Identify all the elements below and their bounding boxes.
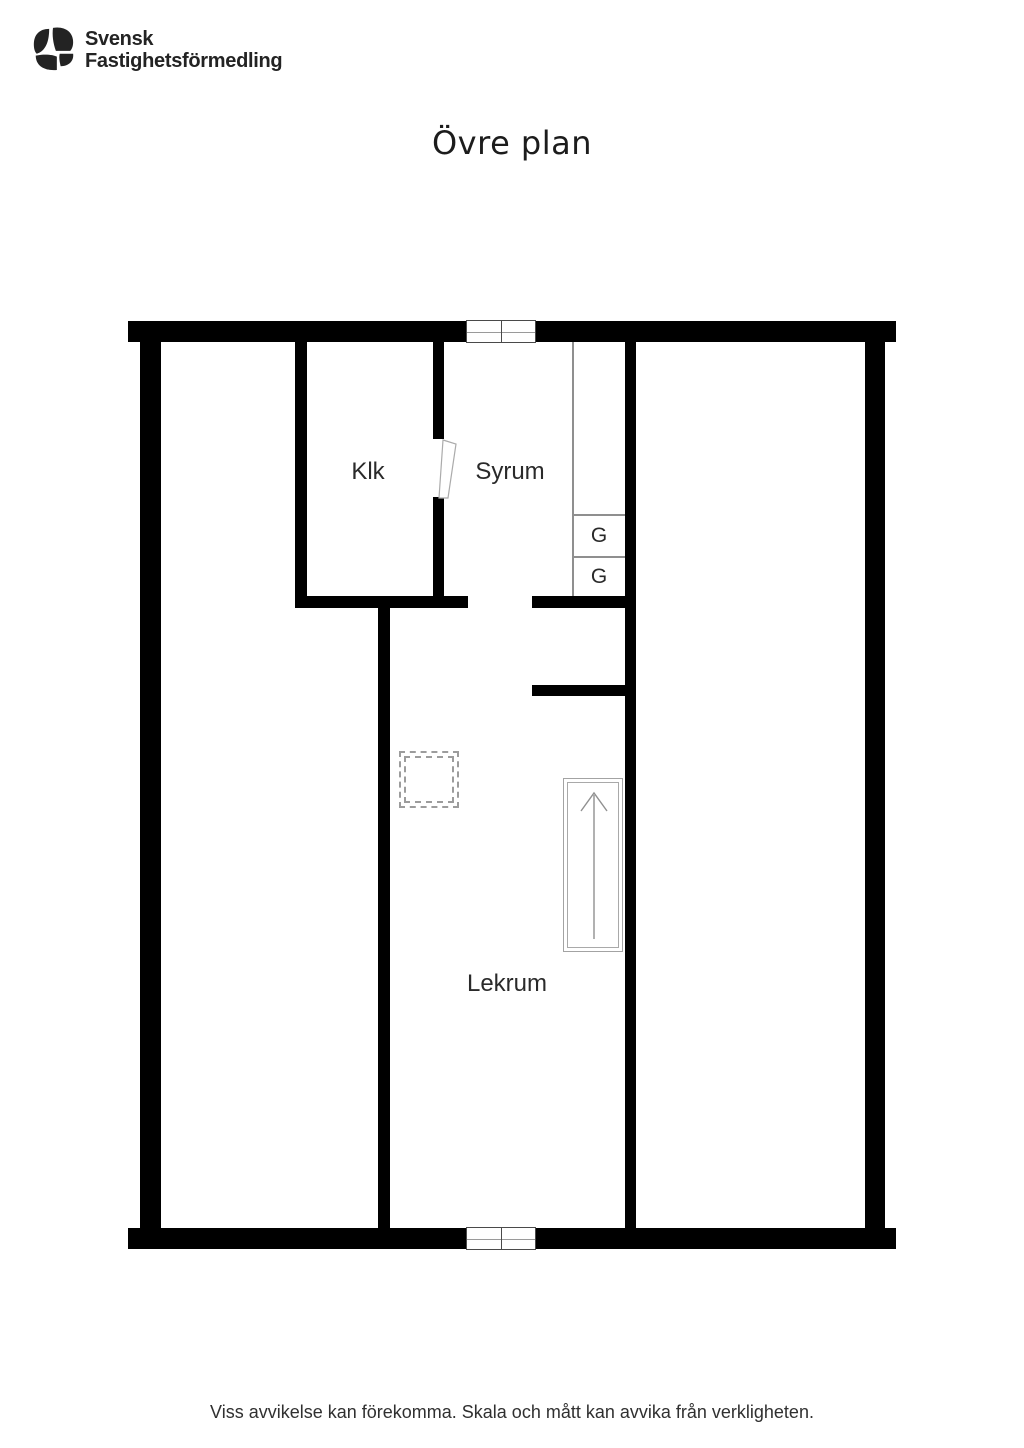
wall-center-vertical <box>625 342 636 1228</box>
staircase-arrow-up-icon <box>564 779 624 953</box>
wall-lekrum-left <box>378 596 390 1228</box>
room-label-syrum: Syrum <box>450 458 570 486</box>
chimney-dashed-outline <box>399 751 459 808</box>
wall-niche-stub <box>532 685 636 696</box>
wall-exterior-right <box>865 342 885 1228</box>
window-top <box>466 320 536 343</box>
room-label-klk: Klk <box>318 458 418 486</box>
wall-klk-left <box>295 342 307 607</box>
wall-klk-right-lower <box>433 497 444 607</box>
floor-plan: G G Klk Syrum Lekrum <box>0 0 1024 1448</box>
room-syrum-text: Syrum <box>475 458 544 486</box>
wall-klk-right-upper <box>433 342 444 439</box>
disclaimer-text: Viss avvikelse kan förekomma. Skala och … <box>0 1402 1024 1423</box>
wall-exterior-left <box>140 342 161 1228</box>
window-bottom-mullion-vertical <box>501 1228 502 1249</box>
closet-g2-text: G <box>591 565 607 589</box>
chimney-dashed-inner <box>404 756 454 803</box>
closet-label-g2: G <box>573 557 625 596</box>
room-lekrum-text: Lekrum <box>467 970 547 998</box>
room-label-lekrum: Lekrum <box>447 970 567 998</box>
window-bottom <box>466 1227 536 1250</box>
closet-label-g1: G <box>573 515 625 556</box>
room-klk-text: Klk <box>351 458 384 486</box>
staircase <box>563 778 623 952</box>
window-top-mullion-vertical <box>501 321 502 342</box>
closet-g1-text: G <box>591 524 607 548</box>
wall-mid-horizontal-right <box>532 596 636 608</box>
